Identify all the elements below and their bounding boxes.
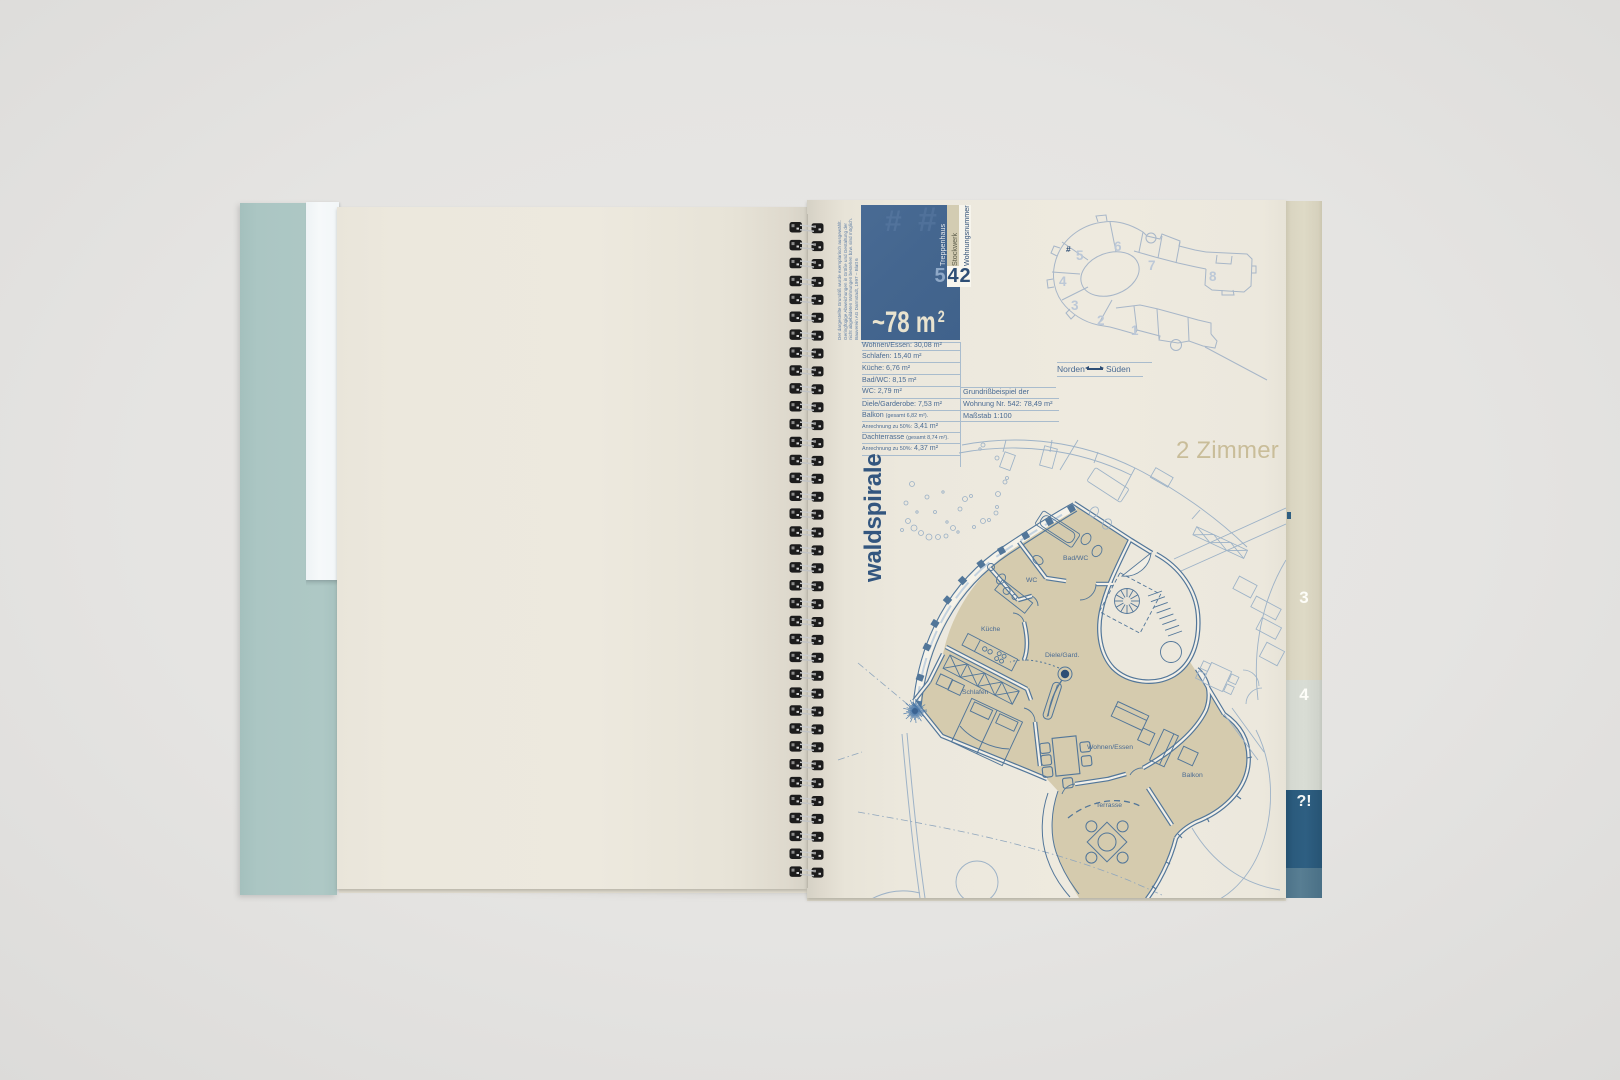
svg-text:2: 2: [1097, 313, 1105, 328]
svg-text:Küche: Küche: [981, 626, 1000, 633]
svg-text:Wohnen/Essen: Wohnen/Essen: [1087, 744, 1133, 751]
svg-text:Bad/WC: Bad/WC: [1063, 555, 1088, 562]
svg-text:5: 5: [1076, 248, 1084, 263]
svg-text:8: 8: [1209, 269, 1217, 284]
svg-text:Balkon: Balkon: [1182, 772, 1203, 779]
svg-text:6: 6: [1114, 239, 1122, 254]
svg-text:3: 3: [1071, 298, 1079, 313]
svg-text:Terrasse: Terrasse: [1096, 802, 1122, 809]
svg-text:WC: WC: [1026, 577, 1037, 584]
svg-text:4: 4: [1059, 274, 1067, 289]
svg-text:#: #: [1066, 244, 1071, 254]
svg-text:1: 1: [1131, 323, 1139, 338]
svg-text:Schlafen: Schlafen: [962, 689, 989, 696]
svg-text:Diele/Gard.: Diele/Gard.: [1045, 652, 1079, 659]
svg-text:7: 7: [1148, 258, 1156, 273]
